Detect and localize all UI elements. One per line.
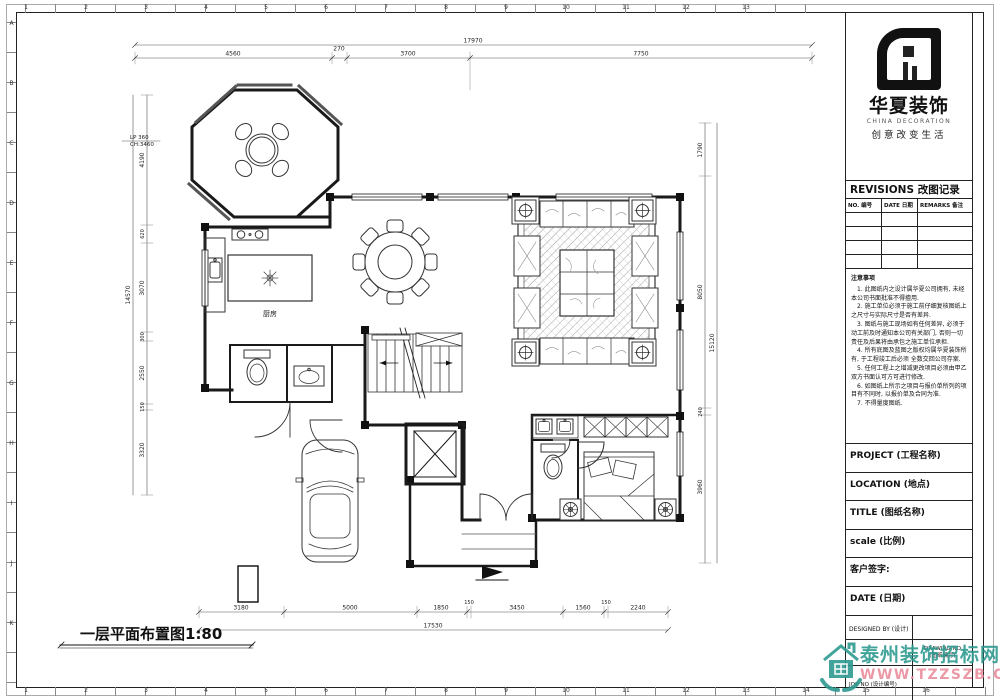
designed-by-label: DESIGNED BY (设计) [846,616,913,639]
kitchen: 厨房 [205,229,312,318]
field-label: PROJECT (工程名称) [846,444,972,473]
svg-text:15120: 15120 [709,333,716,352]
note-line: 2. 施工单位必须于施工前仔细复核图纸上之尺寸与实际尺寸是否有差异. [851,303,967,321]
notes-section: 注意事项 1. 此图纸内之设计属华夏公司拥有, 未经本公司书面批准不得擅用.2.… [846,269,972,444]
wardrobe [584,417,668,437]
note-line: 5. 任何工程上之增减更改项目必须由甲乙双方书面认可方可进行修改. [851,365,967,383]
revisions-column-header: NO. 编号 [846,199,882,212]
notes-title: 注意事项 [851,275,967,284]
sofa-top [540,201,634,227]
note-line: 4. 所有底图及蓝图之版权均属华夏装饰所有, 于工程竣工后必须 全数交回公司存案… [851,347,967,365]
stair-cabinet [416,333,462,346]
svg-text:4190: 4190 [139,152,146,167]
svg-text:3320: 3320 [139,442,146,457]
svg-text:17970: 17970 [463,38,482,45]
living-room [512,197,658,366]
vanity-sinks [532,416,578,438]
drawing-no-row: DRAWING NO (图纸编号) [846,640,972,666]
svg-text:一层平面布置图1:80: 一层平面布置图1:80 [80,625,222,643]
revisions-rows [846,213,972,269]
svg-text:1560: 1560 [575,605,590,612]
designed-by-value[interactable] [913,616,972,639]
svg-text:2240: 2240 [630,605,645,612]
svg-text:620: 620 [140,229,146,239]
island-flower-icon [262,270,278,286]
revisions-column-header: REMARKS 备注 [918,199,972,212]
revision-row[interactable] [846,241,972,255]
notes-list: 1. 此图纸内之设计属华夏公司拥有, 未经本公司书面批准不得擅用.2. 施工单位… [851,286,967,409]
svg-text:150: 150 [464,600,474,606]
revision-row[interactable] [846,227,972,241]
svg-text:5000: 5000 [342,605,357,612]
revisions-title: REVISIONS 改图记录 [846,181,972,199]
field-label: 客户签字: [846,558,972,587]
drawing-sheet: 12345678910111213 1234567891011121314151… [0,0,1000,700]
svg-text:17530: 17530 [423,623,442,630]
svg-text:3700: 3700 [400,51,415,58]
svg-text:150: 150 [140,402,146,412]
dining-table [353,220,437,304]
company-name-cn: 华夏装饰 [846,96,972,116]
svg-text:1790: 1790 [697,142,704,157]
job-no-label: JOB NO (设计编号) [846,666,913,700]
sink-icon [208,258,222,282]
powder-toilet-icon [244,350,270,385]
revision-row[interactable] [846,213,972,227]
lamp-icon [659,503,673,517]
dimensions: 17970 4560 270 3700 7750 3180 5000 1850 … [125,38,815,633]
svg-text:7750: 7750 [633,51,648,58]
field-label: DATE (日期) [846,587,972,616]
svg-text:3180: 3180 [233,605,248,612]
svg-text:4560: 4560 [225,51,240,58]
svg-text:150: 150 [601,600,611,606]
stair-direction-arrows [380,361,452,366]
svg-text:3960: 3960 [697,479,704,494]
revisions-header: NO. 编号DATE 日期REMARKS 备注 [846,199,972,213]
note-line: 7. 不得量度图纸. [851,400,967,409]
company-slogan: 创意改变生活 [846,127,972,141]
svg-text:14570: 14570 [125,285,132,304]
svg-text:240: 240 [698,407,704,417]
powder-basin-icon [294,366,324,386]
field-label: scale (比例) [846,530,972,559]
field-label: TITLE (图纸名称) [846,501,972,530]
note-line: 6. 如图纸上所示之项目与报价单所列的项目有不同时, 以报价单及合同为准. [851,383,967,401]
revision-row[interactable] [846,255,972,269]
svg-text:CH:3460: CH:3460 [130,142,154,148]
company-name-en: CHINA DECORATION [846,118,972,125]
elevator [406,424,464,484]
svg-text:3450: 3450 [509,605,524,612]
bathrooms [244,350,578,479]
lamp-icon [564,503,578,517]
level-annotation: LP 360 CH:3460 [122,135,160,148]
field-label: LOCATION (地点) [846,473,972,502]
section-flag-icon [476,566,508,580]
field-rows: PROJECT (工程名称)LOCATION (地点)TITLE (图纸名称)s… [846,444,972,616]
company-logo: 华夏装饰 CHINA DECORATION 创意改变生活 [846,28,972,181]
svg-text:LP 360: LP 360 [130,135,149,141]
company-logo-icon [877,28,941,90]
octagon-table [232,120,291,179]
svg-text:8050: 8050 [697,284,704,299]
revisions-column-header: DATE 日期 [882,199,918,212]
plan-title: 一层平面布置图1:80 [58,625,255,648]
coffee-table [560,250,614,316]
svg-text:3070: 3070 [139,280,146,295]
designed-by-row: DESIGNED BY (设计) [846,616,972,640]
car [296,440,364,562]
job-no-value[interactable] [913,666,972,700]
note-line: 1. 此图纸内之设计属华夏公司拥有, 未经本公司书面批准不得擅用. [851,286,967,304]
note-line: 3. 图纸与施工现场如有任何差异, 必须于动工前及时通知本公司有关部门, 否则一… [851,321,967,347]
title-block: 华夏装饰 CHINA DECORATION 创意改变生活 REVISIONS 改… [845,12,973,688]
drawing-no-value[interactable] [846,640,913,665]
cooktop-icon [232,229,268,240]
drawing-no-label: DRAWING NO (图纸编号) [913,640,972,665]
job-no-row: JOB NO (设计编号) [846,666,972,700]
floor-plan: 厨房 [0,0,845,700]
kitchen-label: 厨房 [263,309,277,318]
suite-toilet-icon [541,444,565,479]
svg-text:270: 270 [333,46,345,53]
svg-text:300: 300 [140,332,146,342]
svg-text:1850: 1850 [433,605,448,612]
stairs [368,328,462,398]
sofa-bottom [540,338,634,364]
svg-text:2550: 2550 [139,365,146,380]
